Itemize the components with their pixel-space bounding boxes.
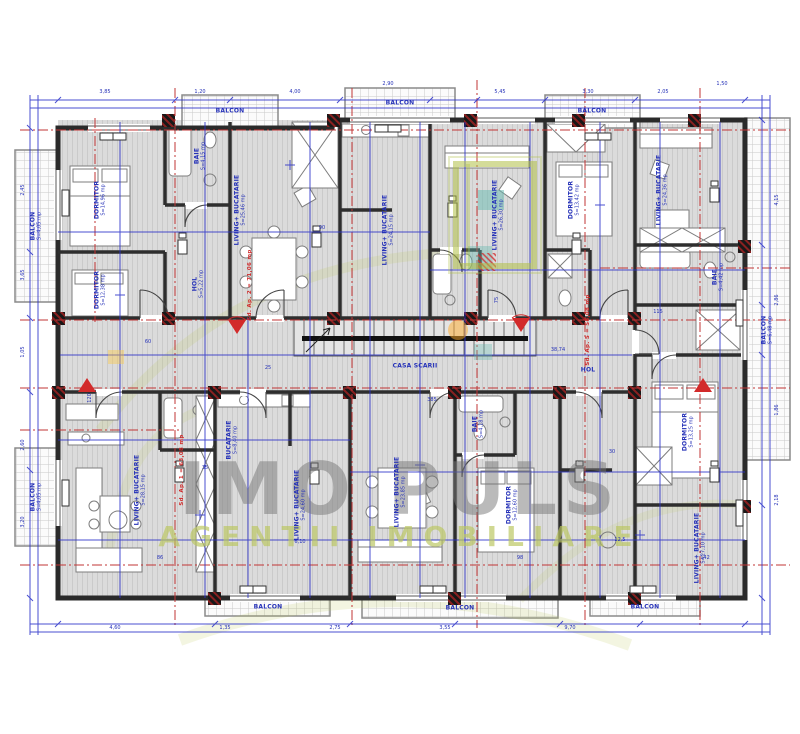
dim-label: 142 (700, 555, 710, 561)
dim-label: 30 (609, 449, 615, 455)
dim-label: 12,5 (614, 537, 625, 543)
dim-label: 3,20 (20, 516, 26, 527)
dim-label: 35 (202, 465, 208, 471)
red-area-annotation: Sd. Ap. 2 = 71,06 mp (247, 249, 253, 320)
room-label-hol: HOL (581, 367, 596, 374)
room-label-living: LIVING+ BUCATARIES=24,60 mp (294, 470, 307, 541)
room-label-living: LIVING+ BUCATARIES=24,36 mp (656, 155, 669, 226)
room-label-living: LIVING+ BUCATARIES=27,10 mp (694, 513, 707, 584)
dim-label: 9,70 (564, 625, 575, 631)
stair-label: CASA SCARII (393, 363, 438, 370)
dim-label: 3,85 (99, 89, 110, 95)
dim-label: 98 (517, 555, 523, 561)
dim-label: 115 (653, 309, 663, 315)
dim-label: 2,86 (774, 294, 780, 305)
room-label-balcon: BALCON (631, 604, 660, 611)
room-label-living: LIVING+ BUCATARIES=23,85 mp (394, 457, 407, 528)
dim-label: 2,05 (657, 89, 668, 95)
room-label-baie: BAIES=4,42 mp (712, 263, 725, 291)
dim-label: 60 (145, 339, 151, 345)
dim-label: 2,90 (382, 81, 393, 87)
floor-plan: IMO PULS AGENTII IMOBILIARE BALCONS=4,05… (0, 0, 800, 734)
dim-label: 1,20 (194, 89, 205, 95)
dim-label: 4,00 (289, 89, 300, 95)
dim-label: 1,86 (774, 404, 780, 415)
room-label-balcon: BALCON (386, 100, 415, 107)
room-label-living: LIVING+ BUCATARIES=25,46 mp (234, 175, 247, 246)
room-label-dormitor: DORMITORS=14,96 mp (94, 181, 107, 219)
dim-label: 1,35 (219, 625, 230, 631)
room-label-living: LIVING+ BUCATARIES=24,15 mp (382, 195, 395, 266)
room-label-balcon: BALCONS=4,05 mp (30, 212, 43, 241)
dim-label: 6,10 (294, 539, 305, 545)
dim-label: 4,15 (774, 194, 780, 205)
room-label-dormitor: DORMITORS=12,38 mp (94, 271, 107, 309)
dim-label: 5,45 (494, 89, 505, 95)
room-label-balcon: BALCONS=4,05 mp (30, 483, 43, 512)
dim-label: 4,60 (109, 625, 120, 631)
room-label-hol: HOLS=5,22 mp (192, 270, 205, 298)
corridor-dim-label: 38,74 (551, 347, 565, 353)
dim-label: 2,18 (774, 494, 780, 505)
dim-label: 86 (157, 555, 163, 561)
dim-label: 90 (319, 225, 325, 231)
room-label-bucatarie: BUCATARIES=8,40 mp (226, 420, 239, 459)
room-label-dormitor: DORMITORS=12,60 mp (506, 486, 519, 524)
room-label-balcon: BALCON (254, 604, 283, 611)
red-area-annotation: Sd. Ap. 1 = 63,08 mp (179, 434, 185, 505)
room-label-living: LIVING+ BUCATARIES=28,15 mp (134, 455, 147, 526)
dim-label: 2,45 (20, 184, 26, 195)
staircase (294, 320, 536, 356)
dim-label: 385 (427, 397, 437, 403)
room-label-dormitor: DORMITORS=13,42 mp (568, 181, 581, 219)
room-label-balcon: BALCON (446, 605, 475, 612)
room-label-dormitor: DORMITORS=13,25 mp (682, 413, 695, 451)
room-label-baie: BAIES=4,18 mp (472, 410, 485, 438)
dim-label: 1,05 (20, 346, 26, 357)
dim-label: 25 (265, 365, 271, 371)
room-label-balcon: BALCON (216, 108, 245, 115)
dim-label: 120 (87, 393, 93, 403)
room-label-living: LIVING+ BUCATARIES=26,30 mp (492, 180, 505, 251)
dim-label: 3,65 (20, 269, 26, 280)
dim-label: 2,60 (20, 439, 26, 450)
dim-label: 75 (494, 297, 500, 303)
room-label-balcon: BALCON (578, 108, 607, 115)
room-label-balcon: BALCONS=6,48 mp (761, 316, 774, 345)
red-area-annotation: Sd. Ap. 5 = 58,08 mp (585, 294, 591, 365)
dim-label: 3,55 (439, 625, 450, 631)
dim-label: 1,50 (716, 81, 727, 87)
room-label-baie: BAIES=4,15 mp (194, 142, 207, 170)
dim-label: 3,30 (582, 89, 593, 95)
dim-label: 2,75 (329, 625, 340, 631)
